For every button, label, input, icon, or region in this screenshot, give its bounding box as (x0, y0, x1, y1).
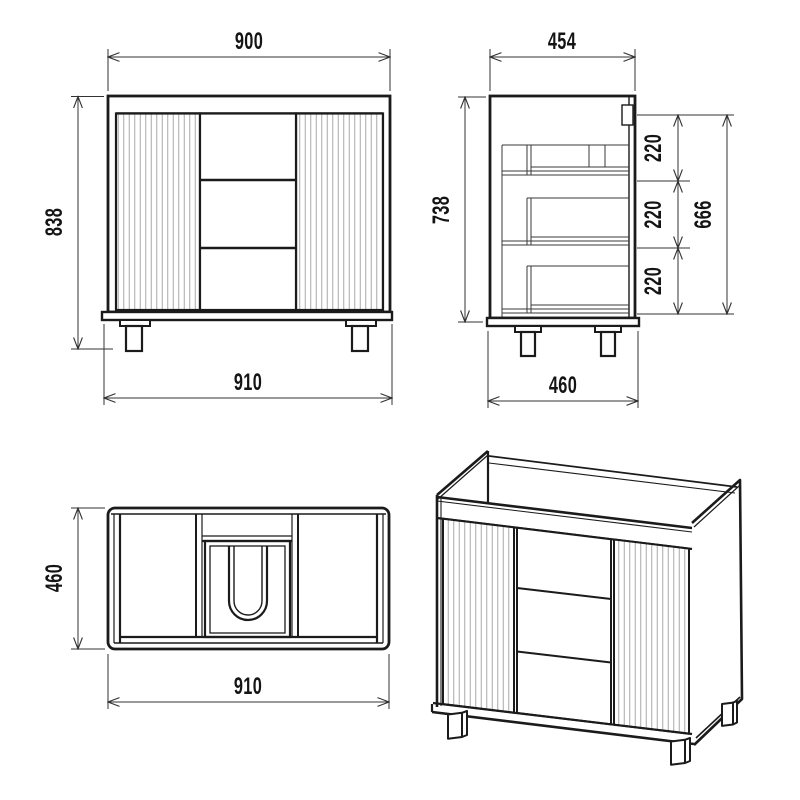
technical-drawing-canvas: 900 838 910 (0, 0, 800, 800)
dim-label-segment-3: 220 (640, 267, 667, 295)
dim-label-front-height: 838 (41, 208, 68, 236)
dim-label-side-height: 738 (428, 196, 455, 224)
iso-left-fluted-door (443, 519, 514, 713)
iso-right-fluted-door (614, 540, 689, 734)
iso-drawer-stack (517, 528, 611, 725)
front-left-fluted-door (116, 114, 200, 311)
dim-label-plan-width: 910 (234, 673, 262, 700)
iso-front-left-leg (448, 711, 467, 739)
dim-label-segment-1: 220 (640, 134, 667, 162)
dim-label-side-top-depth: 454 (548, 28, 576, 55)
dim-label-segment-2: 220 (640, 200, 667, 228)
iso-back-right-leg (722, 701, 737, 726)
front-plinth (102, 312, 392, 320)
side-plinth (487, 318, 639, 326)
dim-label-side-bottom-depth: 460 (549, 372, 577, 399)
front-drawer-stack (200, 114, 296, 311)
dim-label-front-top-width: 900 (235, 28, 263, 55)
dim-label-front-bottom-width: 910 (234, 369, 262, 396)
front-cabinet (102, 96, 392, 351)
dim-label-plan-depth: 460 (41, 564, 68, 592)
side-top-edge-detail (622, 105, 633, 125)
front-right-fluted-door (296, 114, 383, 311)
iso-front-right-leg (671, 738, 690, 765)
dim-label-segments-total: 666 (690, 200, 717, 228)
